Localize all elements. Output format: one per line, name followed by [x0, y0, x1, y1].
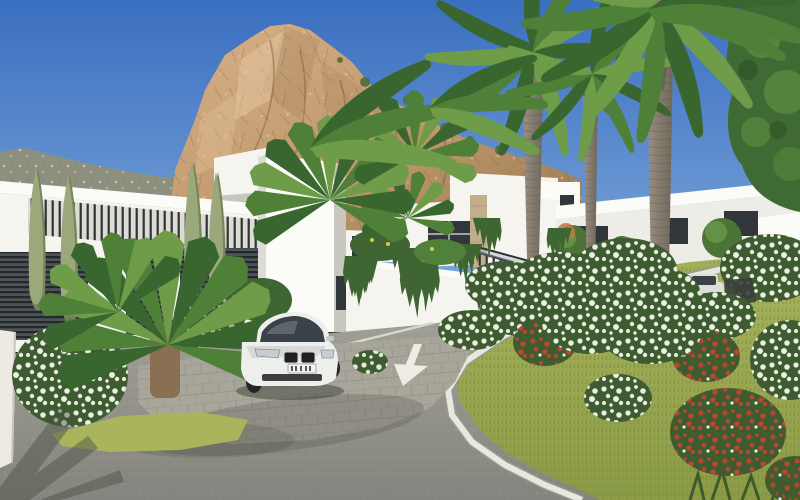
front-intake	[262, 374, 322, 381]
red-flower-bush	[670, 388, 786, 476]
grille	[284, 352, 298, 363]
side-mirror	[326, 336, 334, 341]
villa-development-render	[0, 0, 800, 500]
render-canvas	[0, 0, 800, 500]
